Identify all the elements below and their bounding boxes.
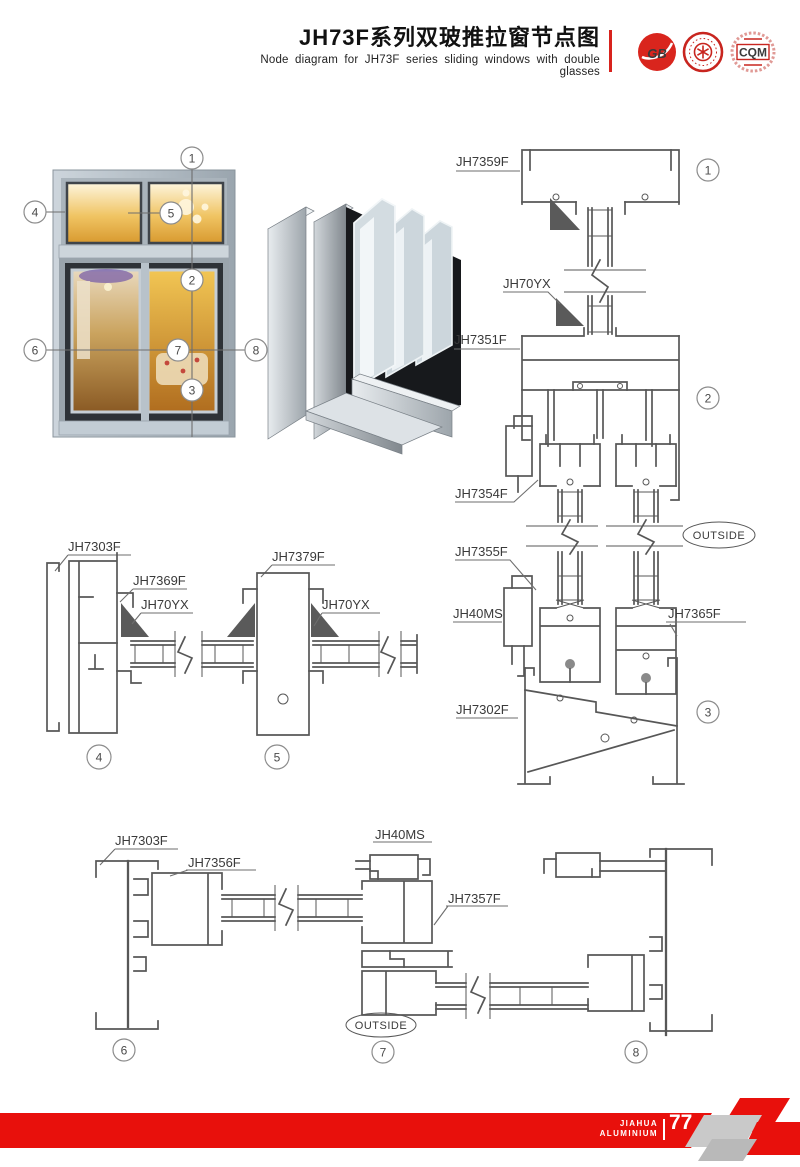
header-divider [609,30,612,72]
handle-block-upper [506,416,532,492]
ceiling-light-ring [79,269,133,283]
callout-2-label: 2 [189,274,196,288]
label-jh7356f: JH7356F [188,855,241,870]
detail-7-meeting-stile-section: JH40MS JH [346,827,588,1063]
page-header: JH73F系列双玻推拉窗节点图 Node diagram for JH73F s… [250,25,600,78]
detail-2-meeting-section: JH7354F OUTSIDE JH7355F JH40MS JH7365F 2 [453,387,755,694]
callout-1-label: 1 [189,152,196,166]
profile-jh7369f [117,593,141,683]
callout-6-label: 6 [32,344,39,358]
detail-4-jamb-section: JH7303F JH7369F JH70YX [47,539,253,769]
label-jh7302f: JH7302F [456,702,509,717]
gb-certification-logo: GB [636,31,678,73]
label-jh40ms: JH40MS [453,606,503,621]
glass-unit-horizontal-upper [222,885,362,931]
cqm-logo-text: CQM [739,46,767,60]
label-jh7303f-d6: JH7303F [115,833,168,848]
sash-profile-upper [362,881,432,943]
detail-5-interlock-section: JH7379F JH70YX 5 [227,549,417,769]
profile-jh7379f [243,573,323,735]
detail-1-head-section: JH7359F JH70YX [454,150,719,390]
label-jh7359f: JH7359F [456,154,509,169]
sash-bottom-rail-left-jh7355f [540,608,600,682]
footer-separator [663,1119,665,1140]
detail-7-number: 7 [380,1046,387,1060]
profile-jh7303f [96,861,158,1029]
glass-unit-horizontal-left [131,631,253,677]
callout-4-label: 4 [32,206,39,220]
sash-top-rail-right [616,435,676,486]
vertical-section-diagram: JH7359F JH70YX [448,138,793,793]
detail-3-number: 3 [705,706,712,720]
profile-jh7359f [522,150,679,214]
callout-7-label: 7 [175,344,182,358]
detail-3-sill-section: JH7302F 3 [456,658,719,784]
break-symbol [178,637,192,673]
glass-unit-vertical-right [606,490,683,608]
glass-unit-horizontal-lower [436,973,588,1019]
gb-logo-text: GB [647,46,667,61]
profile-jh7302f-sill [518,658,684,784]
detail-6-number: 6 [121,1044,128,1058]
label-jh7303f: JH7303F [68,539,121,554]
break-symbol [471,977,485,1013]
break-symbol [279,889,293,925]
cqm-certification-logo: CQM [730,31,776,73]
catalog-page: JH73F系列双玻推拉窗节点图 Node diagram for JH73F s… [0,0,800,1167]
roller [641,673,651,683]
label-jh70yx-d4: JH70YX [141,597,189,612]
detail-1-number: 1 [705,164,712,178]
page-number: 77 [669,1111,692,1135]
footer-arrow-decoration [685,1098,800,1161]
label-jh40ms-d7: JH40MS [375,827,425,842]
bottom-rail [59,421,229,435]
horizontal-section-diagram-bottom: JH7303F JH7356F 6 [60,815,740,1065]
label-jh70yx: JH70YX [503,276,551,291]
detail-2-number: 2 [705,392,712,406]
profile-jh7356f [152,873,222,945]
page-title: JH73F系列双玻推拉窗节点图 [250,25,600,51]
break-symbol [562,520,578,554]
glazing-gasket-jh70yx [556,298,584,326]
callout-3-label: 3 [189,384,196,398]
label-jh70yx-d5: JH70YX [322,597,370,612]
meeting-stile [141,263,149,421]
label-jh7354f: JH7354F [455,486,508,501]
profile-jh7351f [522,328,679,390]
lock-device [544,853,666,877]
page-subtitle: Node diagram for JH73F series sliding wi… [250,54,600,78]
jamb-profile [650,849,712,1035]
break-symbol [381,637,395,673]
label-jh7355f: JH7355F [455,544,508,559]
profile-jh7357f [362,971,436,1015]
callout-5-label: 5 [168,207,175,221]
detail-6-jamb-section: JH7303F JH7356F 6 [96,833,362,1061]
curtain [77,281,90,359]
label-jh7351f: JH7351F [454,332,507,347]
sash-profile-right [588,955,644,1011]
brand-line-2: ALUMINIUM [600,1129,658,1138]
break-symbol [638,520,654,554]
profile-jh7303f [47,553,117,733]
brand-line-1: JIAHUA [620,1119,658,1128]
detail-4-number: 4 [96,751,103,765]
label-jh7379f: JH7379F [272,549,325,564]
transom-bar [59,245,229,258]
window-photo-overview: 1 2 3 4 5 6 7 8 [15,145,270,445]
seal-certification-logo [682,31,724,73]
profile-3d-render [256,165,471,455]
label-jh7369f: JH7369F [133,573,186,588]
footer-brand: JIAHUA ALUMINIUM [520,1119,658,1139]
detail-5-number: 5 [274,751,281,765]
lock-jh40ms [356,855,430,879]
sash-bottom-rail-right-jh7365f [616,608,676,694]
lock-jh40ms [504,576,532,676]
interlock-tracks [362,951,452,967]
label-jh7357f: JH7357F [448,891,501,906]
sash-top-rail-left-jh7354f [540,435,600,486]
horizontal-section-diagram-mid: JH7303F JH7369F JH70YX [35,535,425,770]
label-jh7365f: JH7365F [668,606,721,621]
window-photo [53,170,235,437]
room-lamp [104,283,112,291]
roller [565,659,575,669]
glazing-gasket-left [227,603,255,637]
break-symbol [592,260,608,302]
glass-unit-horizontal-right [313,631,417,677]
outside-label: OUTSIDE [693,530,745,542]
detail-8-jamb-section: 8 [544,849,712,1063]
outside-label: OUTSIDE [355,1020,407,1032]
glass-unit-vertical-left [526,490,598,608]
detail-8-number: 8 [633,1046,640,1060]
